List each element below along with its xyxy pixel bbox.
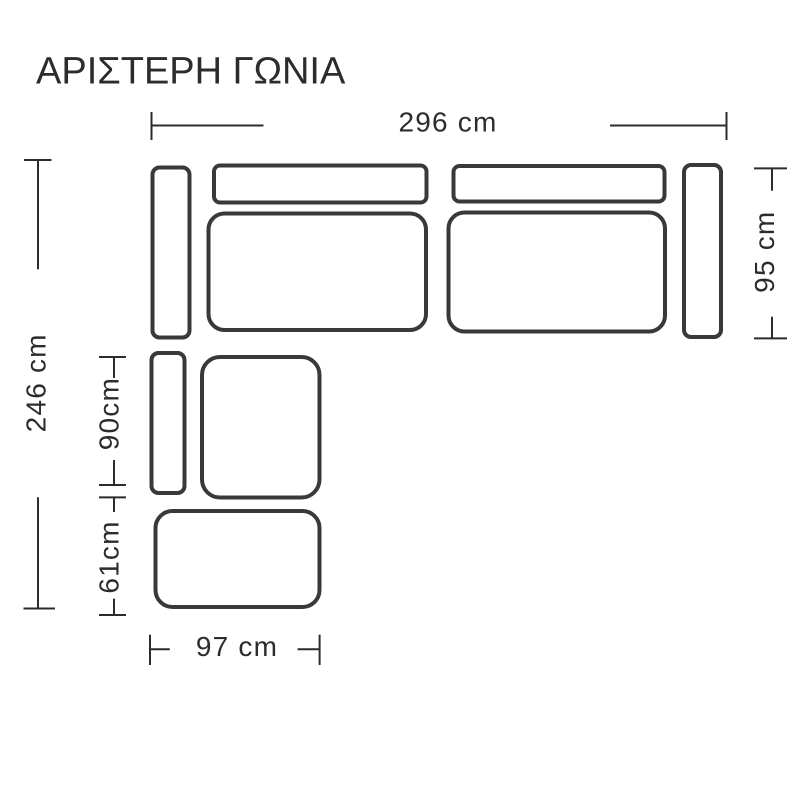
svg-text:ΑΡΙΣΤΕΡΗ ΓΩΝΙΑ: ΑΡΙΣΤΕΡΗ ΓΩΝΙΑ (36, 51, 346, 93)
svg-text:97 cm: 97 cm (196, 631, 278, 662)
svg-text:246 cm: 246 cm (21, 333, 52, 432)
svg-text:90cm: 90cm (94, 377, 125, 450)
svg-text:95 cm: 95 cm (749, 211, 780, 293)
svg-text:296 cm: 296 cm (398, 107, 497, 138)
svg-text:61cm: 61cm (94, 520, 125, 593)
